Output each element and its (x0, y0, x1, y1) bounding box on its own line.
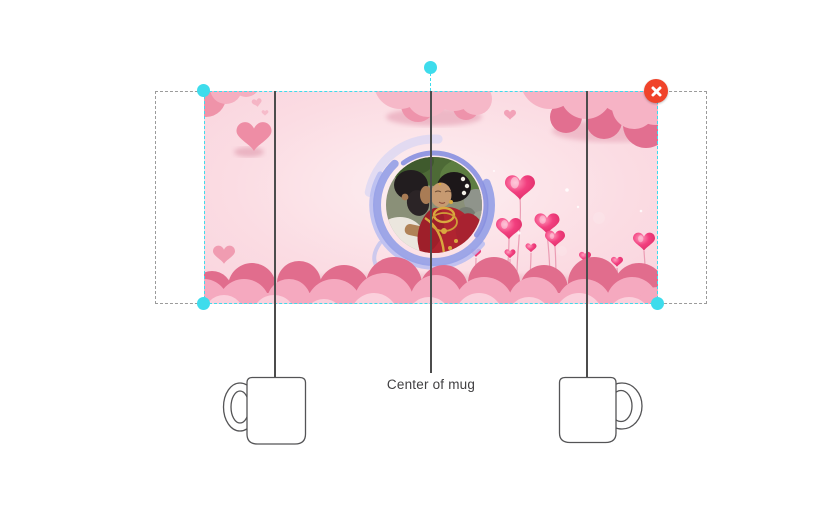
delete-design-button[interactable] (644, 79, 668, 103)
resize-handle-bottom-left[interactable] (197, 297, 210, 310)
mug-right-illustration (553, 373, 647, 449)
mug-print-editor-canvas: Center of mug (0, 0, 832, 522)
rotate-handle-stick (430, 73, 431, 91)
mug-left-center-guide-line (274, 91, 276, 377)
center-of-mug-label: Center of mug (387, 377, 475, 392)
mug-left-illustration (218, 373, 310, 451)
resize-handle-top-left[interactable] (197, 84, 210, 97)
mug-right-center-guide-line (586, 91, 588, 377)
center-of-mug-guide-line (430, 91, 432, 373)
resize-handle-bottom-right[interactable] (651, 297, 664, 310)
close-icon (650, 85, 663, 98)
rotate-handle[interactable] (424, 61, 437, 74)
